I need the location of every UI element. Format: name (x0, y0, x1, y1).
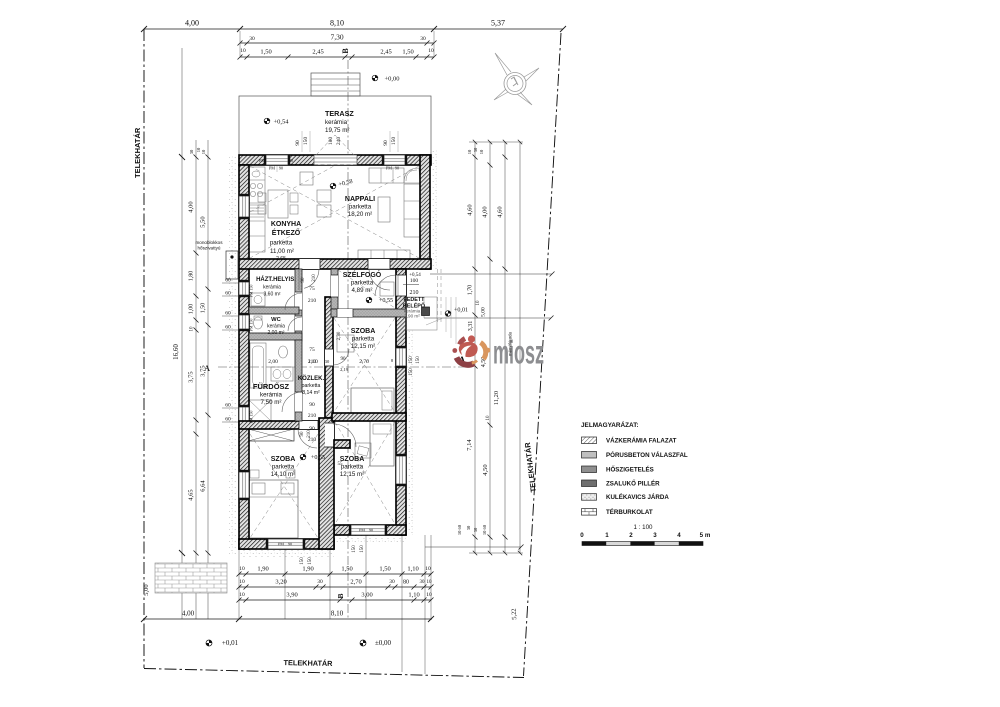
svg-text:parketta: parketta (270, 240, 293, 247)
svg-text:30: 30 (389, 579, 395, 585)
svg-text:PM: PM (359, 528, 365, 533)
svg-text:1,10: 1,10 (408, 592, 419, 599)
svg-text:11,20: 11,20 (493, 391, 500, 405)
svg-text:+0,55: +0,55 (311, 454, 325, 461)
svg-text:2,30: 2,30 (337, 331, 342, 340)
svg-text:1,50: 1,50 (260, 49, 271, 56)
svg-text:parketta: parketta (272, 464, 295, 471)
svg-text:7,50 m²: 7,50 m² (261, 399, 282, 406)
svg-text:90: 90 (288, 542, 292, 547)
svg-text:4,00: 4,00 (482, 206, 489, 217)
svg-text:hőszivattyú: hőszivattyú (198, 246, 221, 251)
svg-text:FÜRDŐSZ: FÜRDŐSZ (253, 382, 290, 391)
svg-text:±0,00: ±0,00 (375, 639, 392, 647)
svg-text:FEDETT: FEDETT (404, 297, 426, 303)
svg-text:+0,01: +0,01 (222, 639, 239, 647)
svg-text:210: 210 (307, 430, 312, 438)
svg-text:150: 150 (409, 368, 414, 376)
svg-text:90: 90 (309, 402, 315, 408)
svg-text:1,70: 1,70 (468, 285, 474, 296)
svg-text:2,65: 2,65 (276, 256, 286, 262)
svg-text:150: 150 (352, 545, 357, 553)
svg-text:3,20: 3,20 (275, 579, 286, 586)
svg-text:ZSALUKŐ PILLÉR: ZSALUKŐ PILLÉR (606, 480, 660, 488)
svg-text:kerámia: kerámia (263, 285, 281, 291)
svg-text:100: 100 (410, 278, 419, 284)
svg-text:10 60: 10 60 (482, 524, 487, 535)
svg-text:180: 180 (328, 137, 334, 146)
svg-text:kerámia: kerámia (325, 119, 348, 126)
svg-text:B: B (341, 48, 350, 54)
svg-text:30: 30 (473, 147, 478, 152)
svg-text:18,20 m²: 18,20 m² (348, 211, 372, 218)
svg-text:55: 55 (338, 462, 344, 467)
svg-text:90: 90 (395, 166, 399, 171)
svg-text:PM 150: PM 150 (249, 411, 254, 424)
svg-text:KONYHA: KONYHA (271, 221, 301, 228)
svg-text:11,00 m²: 11,00 m² (270, 248, 294, 255)
svg-text:240: 240 (336, 137, 342, 146)
svg-text:1,10: 1,10 (308, 359, 318, 365)
svg-text:210: 210 (308, 413, 317, 419)
svg-text:4,65: 4,65 (188, 489, 195, 500)
svg-text:19,75 m²: 19,75 m² (325, 127, 349, 134)
svg-text:TELEKHATÁR: TELEKHATÁR (133, 127, 142, 178)
svg-text:PM 150: PM 150 (249, 285, 254, 298)
svg-text:B: B (336, 593, 345, 598)
svg-text:6,64: 6,64 (200, 480, 207, 492)
svg-text:10: 10 (427, 580, 433, 585)
svg-text:90: 90 (341, 357, 347, 362)
svg-text:2: 2 (629, 532, 633, 539)
svg-text:1,80: 1,80 (189, 271, 195, 282)
svg-text:SZOBA: SZOBA (351, 328, 376, 335)
svg-text:parketta: parketta (351, 280, 374, 287)
svg-text:150: 150 (391, 137, 397, 146)
svg-text:75: 75 (309, 286, 315, 292)
svg-text:KÖZLEK.: KÖZLEK. (298, 375, 325, 382)
svg-text:PM: PM (386, 166, 392, 171)
svg-text:5,50: 5,50 (200, 216, 207, 227)
svg-text:3,31: 3,31 (468, 321, 474, 332)
svg-text:150: 150 (409, 356, 414, 364)
svg-text:2,90 m²: 2,90 m² (404, 314, 420, 319)
svg-text:2,00 m²: 2,00 m² (268, 330, 285, 336)
svg-text:JELMAGYARÁZAT:: JELMAGYARÁZAT: (581, 420, 639, 429)
svg-text:TELEKHATÁR: TELEKHATÁR (284, 658, 334, 668)
svg-text:3,75: 3,75 (188, 371, 195, 382)
svg-text:4,00: 4,00 (182, 610, 195, 618)
svg-text:10: 10 (190, 326, 195, 332)
svg-text:80: 80 (403, 580, 409, 586)
svg-text:10: 10 (476, 300, 481, 306)
svg-text:150: 150 (416, 356, 421, 364)
svg-text:2,00: 2,00 (268, 359, 278, 365)
svg-text:10 60: 10 60 (457, 524, 462, 535)
svg-text:16,60: 16,60 (172, 344, 180, 360)
svg-text:1,10: 1,10 (407, 566, 418, 573)
svg-text:+0,01: +0,01 (454, 307, 468, 314)
svg-text:30: 30 (325, 359, 330, 364)
svg-text:150: 150 (303, 137, 309, 146)
svg-text:7,14: 7,14 (466, 439, 473, 451)
svg-text:2,70: 2,70 (350, 579, 361, 586)
svg-text:12,15 m²: 12,15 m² (351, 343, 375, 350)
svg-text:4,89 m²: 4,89 m² (352, 287, 373, 294)
svg-text:parketta: parketta (341, 464, 364, 471)
svg-text:monoblokkos: monoblokkos (195, 240, 223, 245)
svg-text:30: 30 (249, 36, 255, 42)
svg-text:150: 150 (308, 557, 313, 565)
svg-text:4,60: 4,60 (497, 206, 504, 217)
svg-text:1,00: 1,00 (189, 304, 195, 315)
svg-text:10: 10 (239, 579, 245, 585)
svg-text:2,45: 2,45 (380, 49, 391, 56)
svg-text:TERASZ: TERASZ (325, 109, 354, 118)
svg-text:1 : 100: 1 : 100 (634, 524, 653, 531)
svg-text:90: 90 (289, 158, 293, 163)
svg-text:5,00: 5,00 (481, 307, 487, 317)
svg-text:3: 3 (653, 532, 657, 539)
svg-text:10: 10 (428, 48, 434, 54)
svg-text:75: 75 (309, 347, 315, 353)
svg-text:12,15 m²: 12,15 m² (340, 471, 364, 478)
svg-text:10: 10 (486, 415, 491, 421)
svg-text:90: 90 (301, 277, 306, 283)
svg-text:PM 150: PM 150 (249, 319, 254, 332)
svg-text:2,70: 2,70 (359, 359, 369, 365)
svg-text:4: 4 (677, 532, 681, 539)
svg-text:NAPPALI: NAPPALI (345, 196, 375, 203)
svg-text:3,90: 3,90 (286, 592, 297, 599)
svg-text:8,14 m²: 8,14 m² (302, 390, 320, 396)
svg-text:8,10: 8,10 (330, 19, 344, 28)
svg-text:HŐSZIGETELÉS: HŐSZIGETELÉS (606, 466, 654, 474)
svg-text:1,90: 1,90 (302, 566, 313, 573)
svg-text:SZOBA: SZOBA (340, 456, 365, 463)
svg-text:10: 10 (479, 149, 484, 154)
svg-text:kerámia: kerámia (260, 392, 283, 399)
svg-text:PÓRUSBETON VÁLASZFAL: PÓRUSBETON VÁLASZFAL (606, 451, 688, 459)
svg-text:7,30: 7,30 (330, 33, 343, 42)
svg-text:0: 0 (580, 532, 584, 539)
svg-text:HÁZT.HELYIS.: HÁZT.HELYIS. (256, 276, 296, 283)
svg-text:10: 10 (426, 592, 432, 598)
svg-text:TÉRBURKOLAT: TÉRBURKOLAT (606, 508, 653, 516)
svg-text:30: 30 (473, 527, 478, 532)
svg-text:210: 210 (308, 298, 317, 304)
svg-text:30: 30 (420, 36, 426, 42)
svg-text:1,50: 1,50 (379, 566, 390, 573)
svg-text:1: 1 (605, 532, 609, 539)
svg-text:SZÉLFOGÓ: SZÉLFOGÓ (343, 270, 382, 279)
svg-text:90: 90 (279, 166, 283, 171)
svg-text:150: 150 (360, 545, 365, 553)
svg-text:kerámia: kerámia (267, 324, 285, 330)
svg-text:10: 10 (240, 48, 246, 54)
svg-text:4,00: 4,00 (188, 201, 195, 212)
svg-text:+0,55: +0,55 (379, 297, 393, 304)
svg-text:10: 10 (467, 149, 472, 154)
svg-text:3,60 m²: 3,60 m² (264, 292, 281, 298)
svg-text:parketta: parketta (352, 336, 375, 343)
svg-text:90: 90 (369, 528, 373, 533)
svg-text:VÁZKERÁMIA FALAZAT: VÁZKERÁMIA FALAZAT (606, 438, 677, 445)
svg-text:4,60: 4,60 (467, 204, 474, 215)
svg-text:mérnökiroda: mérnökiroda (508, 332, 513, 356)
svg-text:10: 10 (239, 566, 245, 572)
svg-text:3,75: 3,75 (200, 365, 207, 376)
svg-text:3,00: 3,00 (361, 592, 372, 599)
svg-text:14,10 m²: 14,10 m² (271, 471, 295, 478)
svg-text:8,10: 8,10 (331, 610, 344, 618)
svg-text:1,90: 1,90 (257, 566, 268, 573)
svg-text:30: 30 (317, 579, 323, 585)
svg-text:5,00: 5,00 (143, 584, 150, 595)
svg-text:4,00: 4,00 (185, 19, 199, 28)
svg-text:+0,54: +0,54 (273, 119, 289, 126)
svg-text:2,45: 2,45 (312, 49, 323, 56)
svg-text:90: 90 (295, 140, 301, 146)
svg-text:90: 90 (383, 140, 389, 146)
svg-text:PM: PM (269, 166, 275, 171)
svg-text:30: 30 (189, 149, 194, 154)
svg-text:1,50: 1,50 (402, 49, 413, 56)
svg-text:ÉTKEZŐ: ÉTKEZŐ (272, 228, 301, 237)
svg-text:30: 30 (466, 525, 471, 530)
svg-text:miosz: miosz (493, 334, 544, 371)
svg-text:1,50: 1,50 (201, 303, 207, 314)
svg-text:30: 30 (420, 580, 426, 585)
svg-text:10: 10 (201, 149, 206, 154)
svg-text:SZOBA: SZOBA (271, 456, 296, 463)
svg-text:4,50: 4,50 (482, 464, 489, 475)
svg-text:5,37: 5,37 (491, 19, 505, 28)
svg-text:210: 210 (312, 274, 317, 282)
svg-text:PM: PM (278, 542, 284, 547)
svg-text:parketta: parketta (349, 204, 372, 211)
svg-text:parketta: parketta (302, 383, 321, 389)
svg-text:10: 10 (239, 592, 245, 598)
svg-text:+0,00: +0,00 (384, 76, 399, 83)
svg-text:210: 210 (410, 290, 419, 296)
svg-text:PM: PM (259, 158, 265, 163)
svg-text:10: 10 (425, 566, 431, 572)
svg-text:90: 90 (300, 431, 305, 437)
svg-text:5 m: 5 m (700, 532, 711, 539)
svg-text:150: 150 (300, 557, 305, 565)
svg-text:1,50: 1,50 (341, 566, 352, 573)
svg-text:5,22: 5,22 (511, 608, 519, 620)
svg-text:KULÉKAVICS JÁRDA: KULÉKAVICS JÁRDA (606, 493, 669, 501)
svg-text:WC: WC (271, 317, 281, 323)
